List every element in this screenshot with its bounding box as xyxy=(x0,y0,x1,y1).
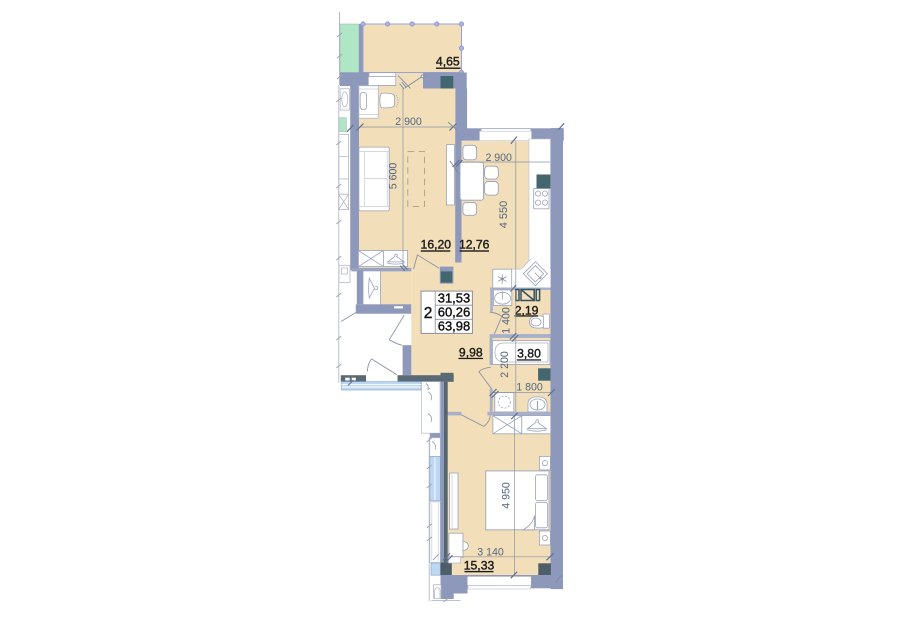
svg-text:4 550: 4 550 xyxy=(498,201,510,229)
svg-text:12,76: 12,76 xyxy=(459,238,490,252)
svg-text:60,26: 60,26 xyxy=(438,304,471,319)
svg-text:1 800: 1 800 xyxy=(516,382,543,394)
svg-text:4,65: 4,65 xyxy=(436,54,460,68)
svg-text:31,53: 31,53 xyxy=(438,290,471,305)
svg-text:4 950: 4 950 xyxy=(501,482,513,509)
svg-text:1 400: 1 400 xyxy=(500,307,512,334)
svg-text:2 900: 2 900 xyxy=(485,152,512,164)
svg-text:2 900: 2 900 xyxy=(395,116,422,128)
svg-text:9,98: 9,98 xyxy=(459,345,483,359)
svg-text:16,20: 16,20 xyxy=(421,238,452,252)
svg-text:63,98: 63,98 xyxy=(438,319,471,334)
svg-text:2: 2 xyxy=(424,305,433,322)
svg-text:3 140: 3 140 xyxy=(477,546,504,558)
svg-text:2 200: 2 200 xyxy=(499,351,511,378)
svg-text:15,33: 15,33 xyxy=(464,559,495,573)
svg-text:5 600: 5 600 xyxy=(388,163,400,190)
svg-text:3,80: 3,80 xyxy=(517,346,541,360)
